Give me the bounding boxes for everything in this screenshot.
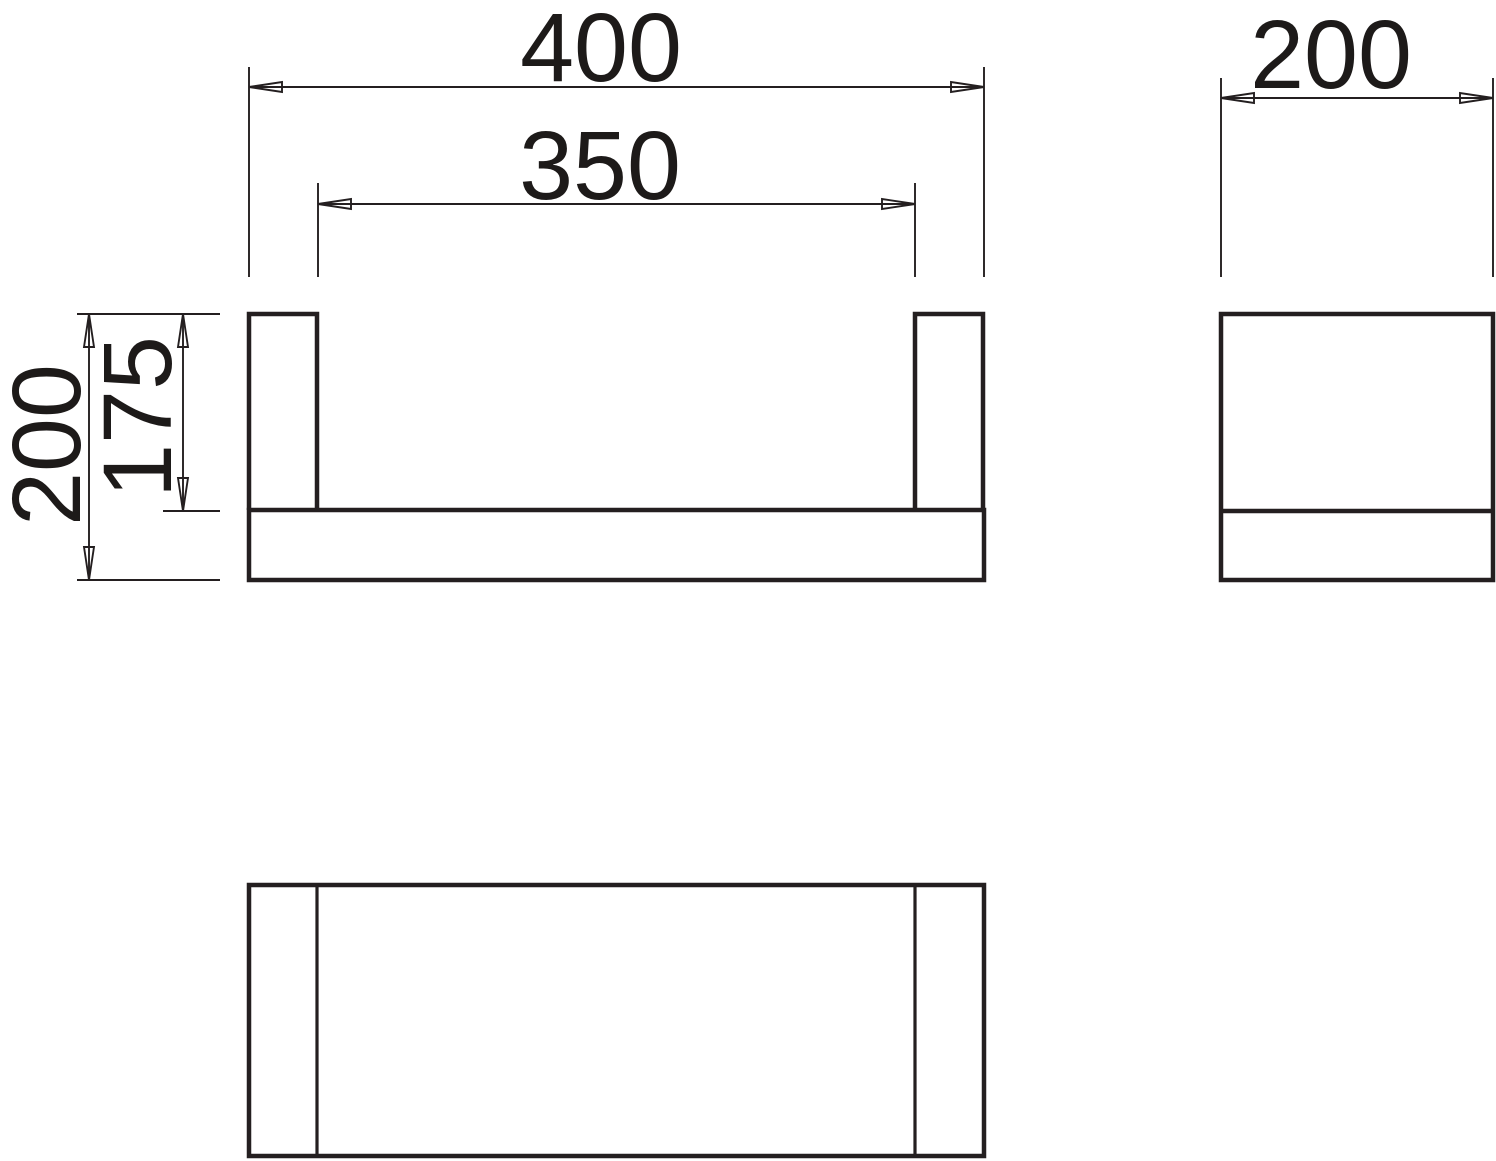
dimension-value-inner-span: 350 bbox=[519, 111, 681, 220]
three-view-technical-drawing: 400 350 200 200 bbox=[0, 0, 1496, 1161]
dimension-inner-span: 350 bbox=[318, 111, 915, 277]
top-view bbox=[249, 885, 984, 1156]
side-view bbox=[1221, 314, 1493, 580]
dimension-side-depth: 200 bbox=[1221, 0, 1493, 277]
dimension-post-height: 175 bbox=[83, 314, 220, 511]
top-view-outline bbox=[249, 885, 984, 1156]
front-view bbox=[249, 314, 984, 580]
front-view-right-post bbox=[915, 314, 983, 510]
dimension-value-overall-width: 400 bbox=[520, 0, 682, 102]
dimension-value-side-depth: 200 bbox=[1250, 0, 1412, 109]
front-view-left-post bbox=[249, 314, 317, 510]
technical-drawing-canvas: 400 350 200 200 bbox=[0, 0, 1496, 1161]
side-view-outline bbox=[1221, 314, 1493, 580]
dimension-value-post-height: 175 bbox=[83, 336, 192, 498]
front-view-base-bar bbox=[249, 510, 984, 580]
